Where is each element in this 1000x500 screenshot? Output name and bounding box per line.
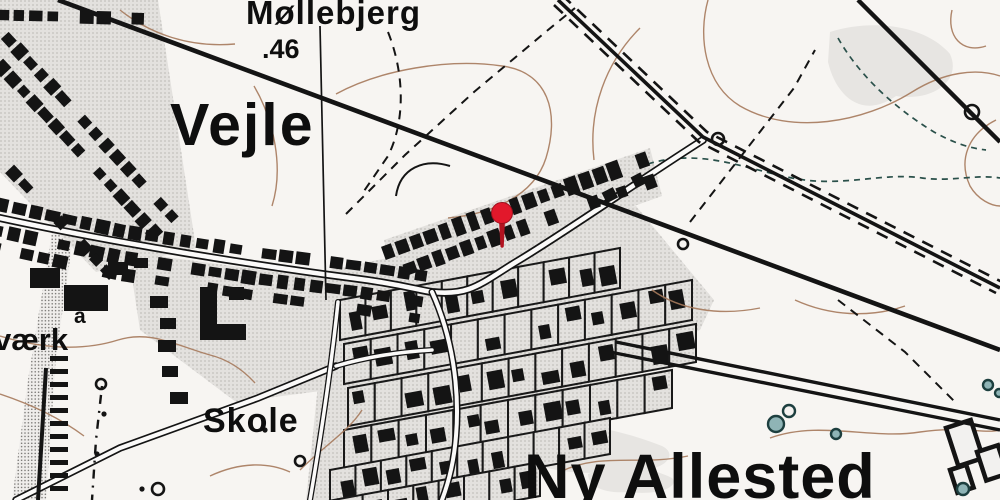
map-label-ny-allested: Ny Allested [524,446,876,500]
map-label-moellebjerg: Møllebjerg [246,0,421,29]
map-label-vaerk: værk [0,324,68,355]
map-label-skole: Skole [203,404,299,438]
map-label-vejle: Vejle [170,96,315,155]
map-canvas[interactable]: Møllebjerg .46 Vejle a værk Skole Ny All… [0,0,1000,500]
map-label-elevation-46: .46 [262,36,300,63]
map-graphics [0,0,1000,500]
map-label-partial-a: a [74,306,86,327]
